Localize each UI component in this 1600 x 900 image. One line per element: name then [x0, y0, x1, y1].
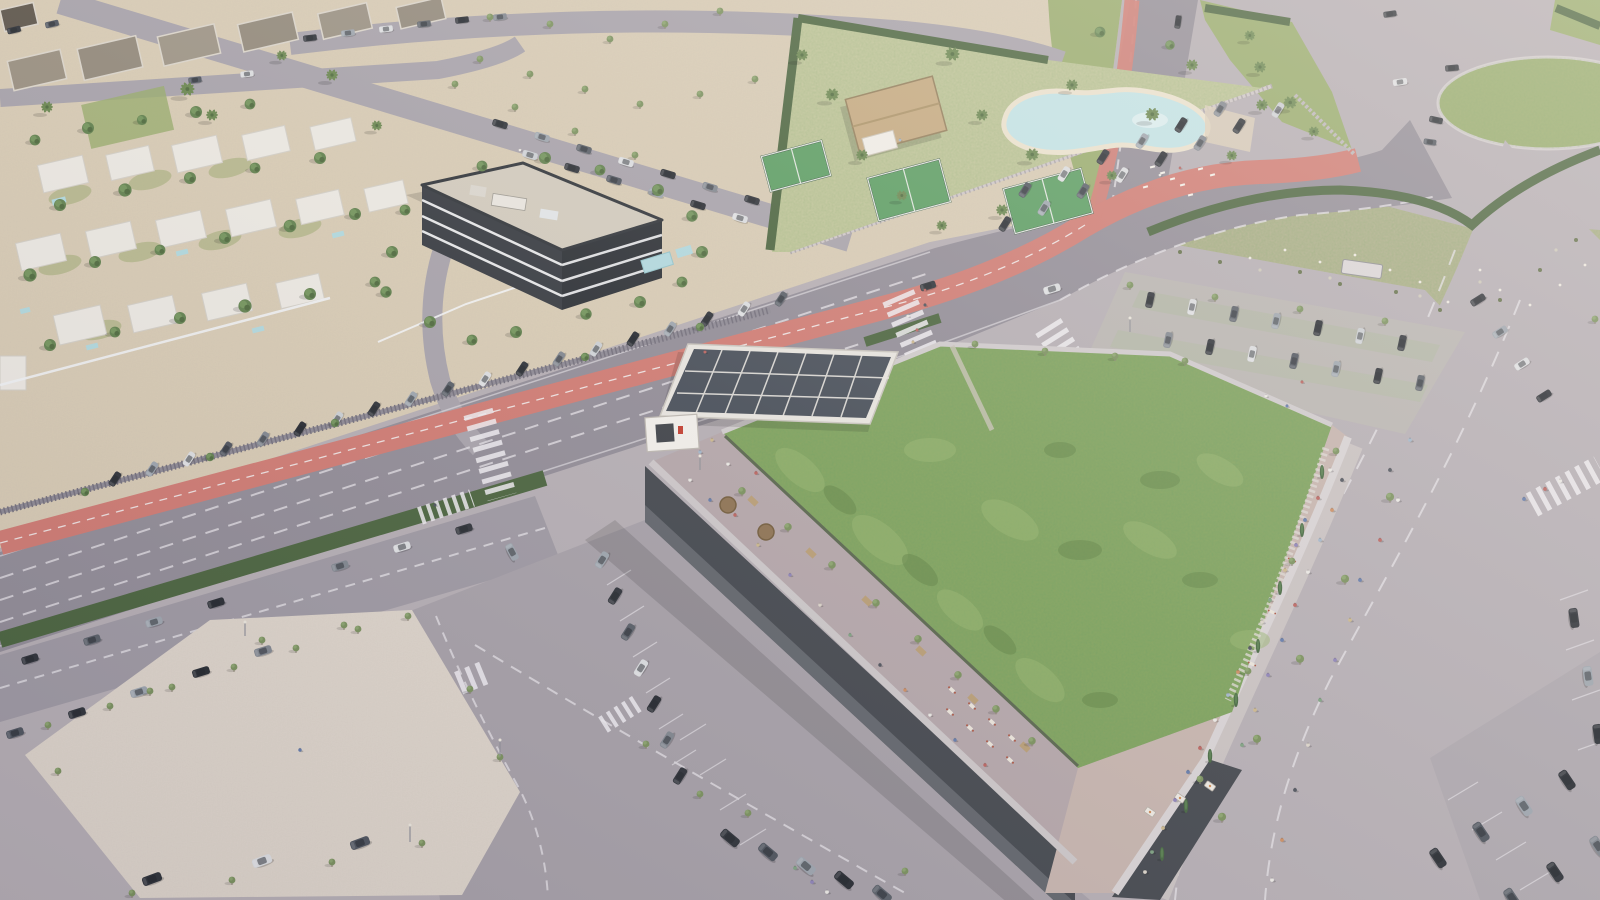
aerial-render-viewport: [0, 0, 1600, 900]
aerial-render: [0, 0, 1600, 900]
atmosphere-haze: [0, 0, 1600, 900]
